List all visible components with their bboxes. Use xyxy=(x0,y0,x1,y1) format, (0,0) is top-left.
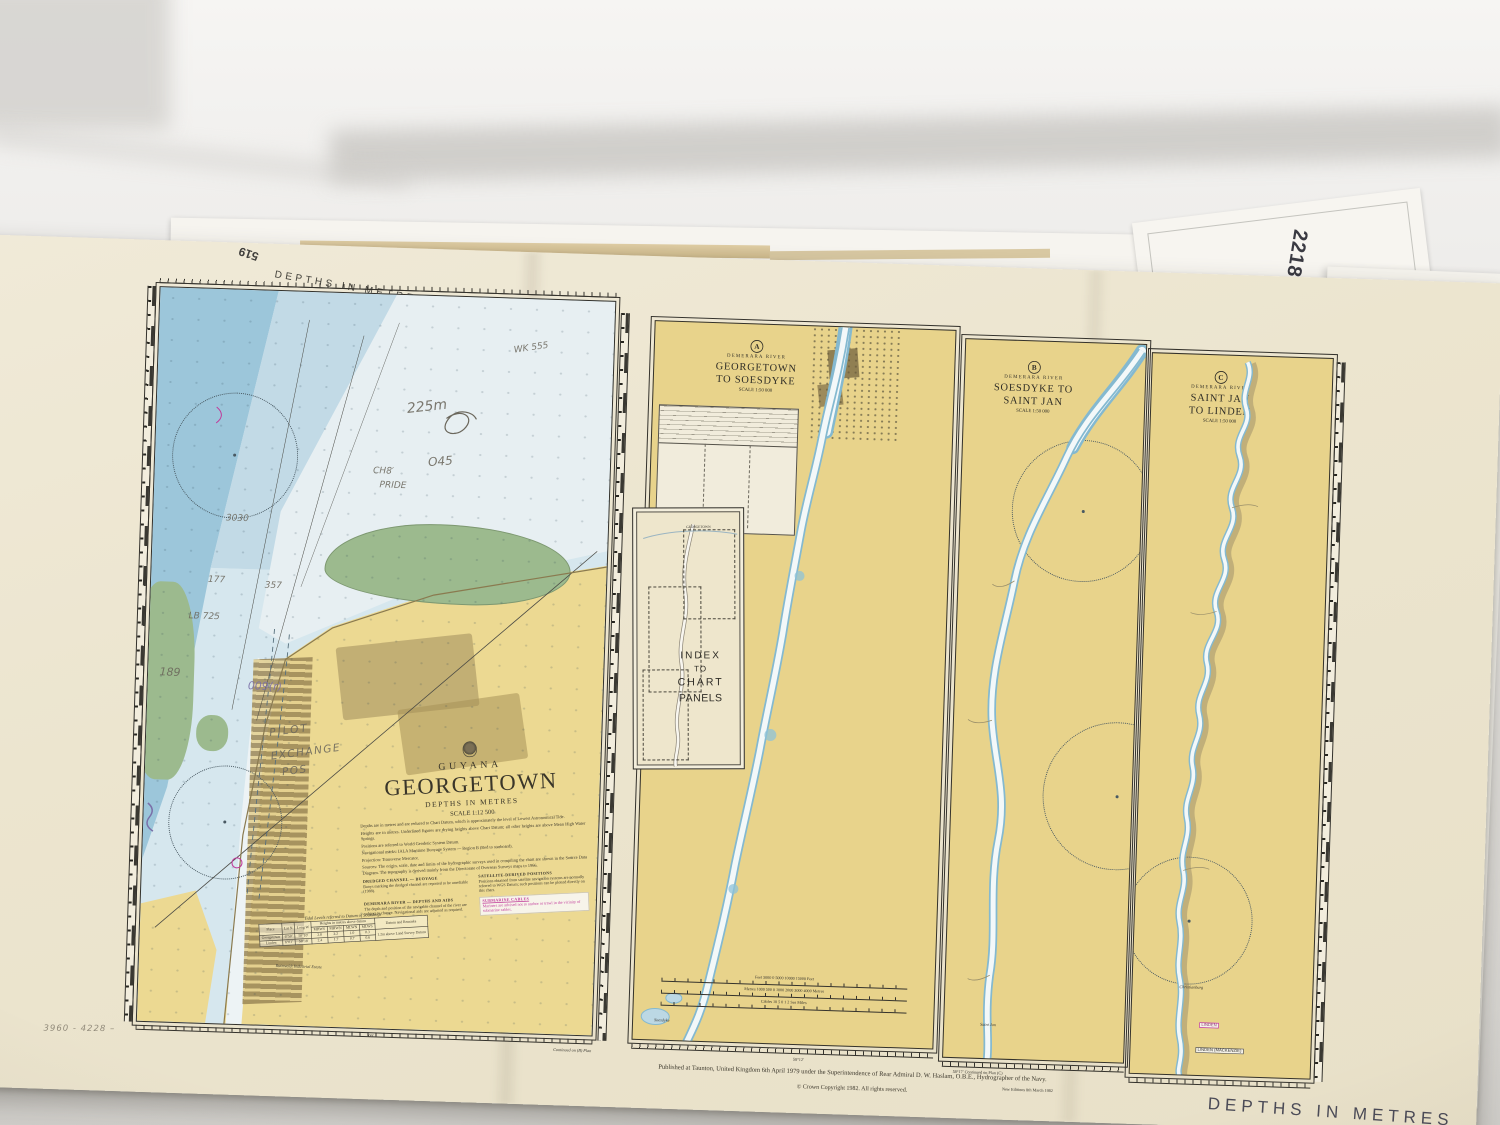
demerara-river-panel-c xyxy=(1130,353,1334,1079)
note-section: DREDGED CHANNEL — BUOYAGE Buoys marking … xyxy=(363,875,473,899)
panel-c: C DEMERARA RIVER SAINT JAN TO LINDEN SCA… xyxy=(1129,352,1334,1079)
tidal-col: Long W xyxy=(295,921,312,933)
tidal-col: Lat N xyxy=(282,922,296,934)
handwritten-annotation: O45 xyxy=(428,453,454,469)
inset-georgetown-label: GEORGETOWN xyxy=(686,525,710,529)
inset-title-line: CHART xyxy=(662,676,739,692)
tidal-cell: 1.7 xyxy=(328,936,345,942)
handwritten-annotation: LB 725 xyxy=(188,611,220,622)
tidal-col: Place xyxy=(259,923,282,935)
tidal-cell: 1.2m above Land Survey Datum xyxy=(375,926,428,940)
tidal-cell: 0.6 xyxy=(360,934,376,940)
inset-title-line: TO xyxy=(662,664,739,676)
tidal-cell: 2.4 xyxy=(312,937,328,943)
handwritten-annotation: 357 xyxy=(265,581,283,592)
tidal-cell: 58°18′ xyxy=(296,938,313,944)
place-label: Christianburg xyxy=(1179,985,1203,990)
panel-b: B DEMERARA RIVER SOESDYKE TO SAINT JAN S… xyxy=(942,338,1147,1064)
handwritten-annotation: 009(r) xyxy=(248,679,283,693)
handwritten-annotation: 3030 xyxy=(226,513,249,524)
photo-of-nautical-charts: 2218 519 DEPTHS IN METRES xyxy=(0,0,1500,1125)
backdrop-shadow xyxy=(0,0,170,130)
index-to-chart-panels-inset: GEORGETOWN INDEX TO CHART PANELS xyxy=(632,507,745,769)
continued-note: Continued on (B) Plan xyxy=(553,1048,591,1053)
tidal-cell: Linden xyxy=(260,940,283,947)
tidal-cell: 6°01′ xyxy=(283,939,296,945)
title-block: GUYANA GEORGETOWN DEPTHS IN METRES SCALE… xyxy=(357,736,590,921)
place-label-box: LINDEN xyxy=(1200,1022,1220,1028)
crest-icon xyxy=(462,741,477,757)
handwritten-annotation: 3960 - 4228 – xyxy=(44,1024,116,1034)
backdrop-shadow xyxy=(330,106,1500,183)
demerara-river-panel-b xyxy=(943,339,1147,1063)
tidal-cell: 0.7 xyxy=(345,935,361,941)
inset-title-line: INDEX xyxy=(662,649,739,664)
chart-number: 519 xyxy=(237,244,260,264)
inset-title: INDEX TO CHART PANELS xyxy=(662,649,739,708)
inset-title-line: PANELS xyxy=(662,691,739,707)
handwritten-annotation: CH8′ xyxy=(373,467,394,478)
tick-label: 09′ xyxy=(368,1034,373,1038)
longitude-label: 58°12′ xyxy=(793,1058,804,1063)
bottom-border-label: DEPTHS IN METRES xyxy=(1207,1094,1454,1125)
handwritten-annotation: 177 xyxy=(208,575,226,586)
place-label: Ruimveldt Industrial Estate xyxy=(275,964,321,970)
handwritten-annotation: 189 xyxy=(159,665,180,679)
place-label: Saint Jan xyxy=(980,1023,996,1028)
chart-sheet: 519 DEPTHS IN METRES xyxy=(0,233,1500,1125)
handwritten-annotation: PRIDE xyxy=(379,481,406,492)
georgetown-chart-panel: WK 555 225m O45 CH8′ PRIDE 3030 357 177 … xyxy=(136,286,617,1036)
note-section: SATELLITE-DERIVED POSITIONS Positions ob… xyxy=(478,870,588,894)
